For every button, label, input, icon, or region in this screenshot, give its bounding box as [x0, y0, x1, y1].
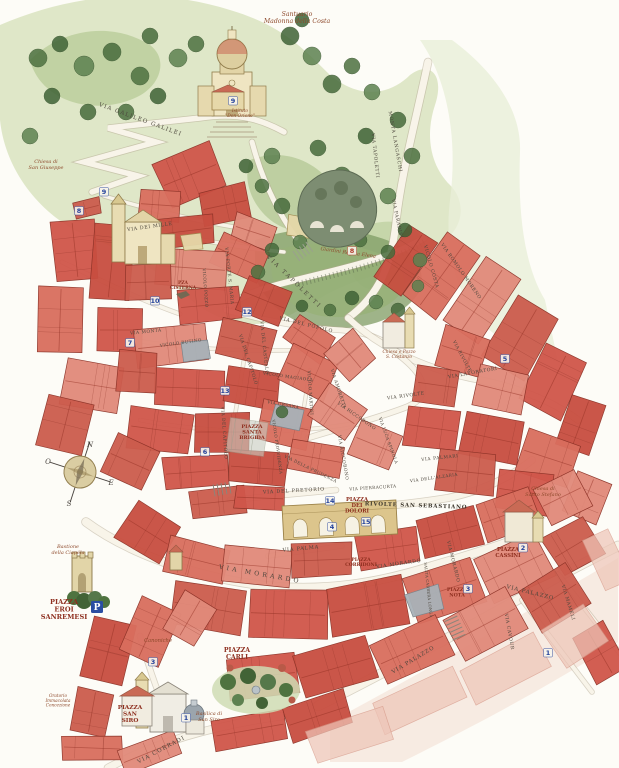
landmark-label: Basilica diSan Siro	[195, 711, 223, 723]
landmark-label: SantuarioMadonna della Costa	[263, 11, 331, 25]
svg-text:3: 3	[151, 658, 156, 666]
compass-s: S	[67, 500, 72, 508]
map-marker: 13	[220, 387, 229, 396]
compass-w: O	[45, 458, 51, 466]
svg-text:1: 1	[546, 649, 551, 657]
map-marker: 1	[544, 649, 553, 658]
landmark-label: Bastionedella Ciapéla	[51, 544, 84, 556]
svg-text:8: 8	[350, 247, 355, 255]
map-marker: 2	[519, 544, 528, 553]
map-marker: 1	[182, 714, 191, 723]
svg-text:5: 5	[503, 355, 508, 363]
svg-text:7: 7	[128, 339, 133, 347]
watercolor-town-map: VIA GALILEO GALILEIMONTA LANGASCHIVIA TA…	[0, 0, 619, 768]
svg-text:13: 13	[220, 387, 229, 395]
svg-text:P: P	[94, 603, 101, 613]
piazza-label: PIAZZASANTABRIGIDA	[239, 424, 265, 441]
map-marker: 4	[328, 523, 337, 532]
piazza-label: PIAZZACASSINI	[495, 547, 521, 559]
svg-text:9: 9	[231, 97, 236, 105]
svg-text:14: 14	[325, 497, 335, 505]
compass-n: N	[86, 441, 94, 449]
map-marker: 9	[100, 188, 109, 197]
svg-text:8: 8	[77, 207, 82, 215]
map-marker: 3	[149, 658, 158, 667]
map-marker: 3	[464, 585, 473, 594]
parking-icon: P	[91, 601, 103, 613]
map-marker: 7	[126, 339, 135, 348]
compass-e: E	[107, 479, 113, 487]
map-marker: 12	[242, 308, 251, 317]
svg-text:1: 1	[184, 714, 189, 722]
landmark-label: Canoniche	[144, 638, 172, 644]
map-marker-red: 8	[348, 247, 357, 256]
svg-text:10: 10	[150, 297, 160, 305]
map-marker: 14	[325, 497, 335, 506]
svg-text:3: 3	[466, 585, 471, 593]
map-marker: 6	[201, 448, 210, 457]
map-marker: 9	[229, 97, 238, 106]
street-label: VIA PIERRACURTA	[348, 483, 397, 491]
svg-text:6: 6	[203, 448, 208, 456]
map-marker: 10	[150, 297, 160, 306]
svg-text:4: 4	[330, 523, 335, 531]
landmark-label: OratorioImmacolataConcezione	[45, 693, 71, 708]
svg-text:9: 9	[102, 188, 107, 196]
piazza-label: PIAZZACARLI	[224, 647, 250, 661]
map-svg: VIA GALILEO GALILEIMONTA LANGASCHIVIA TA…	[0, 0, 619, 768]
map-marker: 8	[75, 207, 84, 216]
svg-text:12: 12	[242, 308, 251, 316]
map-marker: 15	[361, 518, 371, 527]
map-marker: 5	[501, 355, 510, 364]
svg-text:15: 15	[361, 518, 371, 526]
svg-text:2: 2	[521, 544, 526, 552]
landmark-label: Chiesa e PozzoS. Costanzo	[382, 350, 415, 360]
